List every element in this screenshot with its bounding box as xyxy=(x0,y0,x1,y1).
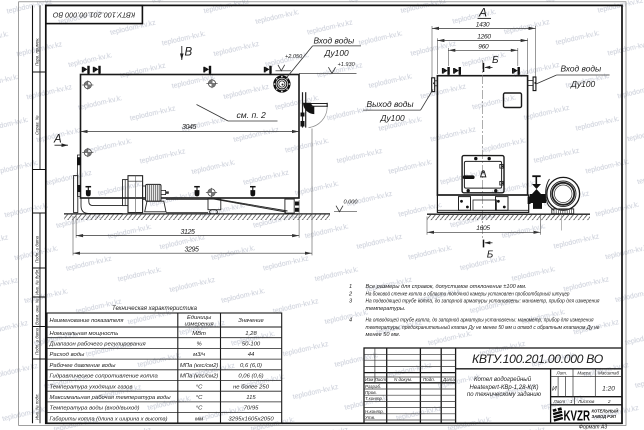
svg-text:Инв. № дубл.: Инв. № дубл. xyxy=(34,269,39,295)
svg-text:3045: 3045 xyxy=(182,124,196,131)
svg-text:температуры.: температуры. xyxy=(366,306,406,312)
svg-text:Значение: Значение xyxy=(238,318,264,324)
svg-text:ЗАВОД РЭП: ЗАВОД РЭП xyxy=(592,414,617,419)
svg-text:Изм Лист: Изм Лист xyxy=(365,377,386,382)
svg-text:КВТУ.100.201.00.000 ВО: КВТУ.100.201.00.000 ВО xyxy=(52,11,135,20)
svg-text:На боковой стенке котла в обла: На боковой стенке котла в области топочн… xyxy=(366,290,570,297)
svg-text:Наименование показателя: Наименование показателя xyxy=(50,318,124,324)
svg-text:Подп.: Подп. xyxy=(423,377,435,382)
svg-text:КОТЕЛЬНЫЙ: КОТЕЛЬНЫЙ xyxy=(592,409,620,414)
svg-text:0,06 (0,6): 0,06 (0,6) xyxy=(238,374,263,380)
svg-text:3125: 3125 xyxy=(181,229,195,236)
svg-text:Техническая характеристика: Техническая характеристика xyxy=(112,306,198,312)
svg-text:1260: 1260 xyxy=(477,34,491,41)
svg-text:44: 44 xyxy=(248,352,255,358)
svg-text:Разраб.: Разраб. xyxy=(365,384,381,389)
svg-text:Габариты котла (длина х ширина: Габариты котла (длина х ширина х высота) xyxy=(50,416,168,422)
svg-text:Лист: Лист xyxy=(553,399,566,404)
svg-text:Температура воды (вход/выход): Температура воды (вход/выход) xyxy=(50,406,140,412)
svg-text:115: 115 xyxy=(246,395,256,401)
svg-text:Единицы: Единицы xyxy=(187,315,212,321)
svg-text:Heatexpert-КВр-1,28-К(К): Heatexpert-КВр-1,28-К(К) xyxy=(470,385,539,391)
svg-text:Н.контр.: Н.контр. xyxy=(365,409,384,414)
svg-text:температуры, предохранительный: температуры, предохранительный клапан Ду… xyxy=(366,324,600,331)
svg-text:Котел водогрейный: Котел водогрейный xyxy=(474,376,532,383)
svg-text:Лит.: Лит. xyxy=(556,371,568,376)
svg-text:На отводящей трубе котла, до з: На отводящей трубе котла, до запорной ар… xyxy=(366,317,594,324)
svg-text:Утв.: Утв. xyxy=(365,415,375,420)
svg-text:1:20: 1:20 xyxy=(602,386,615,393)
svg-text:Вход воды: Вход воды xyxy=(561,64,602,74)
svg-text:В: В xyxy=(185,47,193,59)
svg-text:Б: Б xyxy=(487,250,494,261)
svg-text:50-100: 50-100 xyxy=(242,342,261,348)
svg-text:Т.контр.: Т.контр. xyxy=(365,396,383,401)
svg-text:МПа (кгс/см2): МПа (кгс/см2) xyxy=(180,374,219,380)
svg-text:Ду100: Ду100 xyxy=(324,48,349,58)
svg-text:Максимальная рабочая температу: Максимальная рабочая температура воды xyxy=(50,395,172,401)
svg-text:Ду100: Ду100 xyxy=(570,79,595,89)
svg-text:Ду100: Ду100 xyxy=(380,113,405,123)
svg-text:1605: 1605 xyxy=(476,225,490,232)
svg-text:KVZR: KVZR xyxy=(564,408,591,424)
svg-text:МВт: МВт xyxy=(192,331,206,337)
svg-text:см. п. 2: см. п. 2 xyxy=(237,110,266,120)
svg-text:1: 1 xyxy=(349,284,352,290)
svg-text:Все размеры для справок, допус: Все размеры для справок, допустимое откл… xyxy=(366,284,527,290)
svg-text:Взам. инв. №: Взам. инв. № xyxy=(34,298,39,325)
svg-text:Вход воды: Вход воды xyxy=(314,36,355,46)
svg-text:+2.050: +2.050 xyxy=(285,54,303,60)
svg-text:менее 50 мм.: менее 50 мм. xyxy=(366,332,401,338)
svg-text:1430: 1430 xyxy=(476,21,490,28)
svg-text:На подводящей трубе котла, до: На подводящей трубе котла, до запорной а… xyxy=(366,298,600,305)
svg-text:Инв. № подл.: Инв. № подл. xyxy=(34,393,39,420)
svg-text:Масса: Масса xyxy=(577,371,591,376)
svg-text:Температура уходящих газов: Температура уходящих газов xyxy=(50,384,133,390)
svg-text:И: И xyxy=(552,386,557,393)
svg-text:N докум.: N докум. xyxy=(394,377,412,382)
svg-text:не более 250: не более 250 xyxy=(233,384,270,390)
svg-text:960: 960 xyxy=(478,44,489,51)
svg-text:Диапазон рабочего регулировани: Диапазон рабочего регулирования xyxy=(49,342,147,348)
svg-text:А: А xyxy=(478,6,487,20)
svg-text:МПа (кгс/см2): МПа (кгс/см2) xyxy=(180,363,219,369)
svg-text:Пров.: Пров. xyxy=(365,390,377,395)
svg-text:Дата: Дата xyxy=(442,377,455,382)
svg-text:Подп. и дата: Подп. и дата xyxy=(34,235,39,263)
svg-text:0,6 (6,0): 0,6 (6,0) xyxy=(240,363,262,369)
svg-text:Подп. и дата: Подп. и дата xyxy=(34,327,39,355)
svg-text:Формат А3: Формат А3 xyxy=(579,425,607,430)
svg-text:Листов: Листов xyxy=(577,399,595,404)
svg-text:°С: °С xyxy=(196,406,203,412)
svg-text:Расход воды: Расход воды xyxy=(50,352,86,358)
svg-text:2: 2 xyxy=(607,399,611,404)
svg-text:Выход воды: Выход воды xyxy=(367,99,414,109)
svg-text:измерения: измерения xyxy=(185,322,214,328)
svg-text:мм: мм xyxy=(195,416,203,422)
svg-text:Перв. примен.: Перв. примен. xyxy=(34,37,39,66)
svg-text:Гидравлическое сопротивление к: Гидравлическое сопротивление котла xyxy=(50,374,159,380)
svg-text:Масштаб: Масштаб xyxy=(598,371,619,376)
svg-text:0.000: 0.000 xyxy=(344,200,359,206)
svg-text:4: 4 xyxy=(349,318,352,324)
svg-text:Рабочее давление воды: Рабочее давление воды xyxy=(50,363,117,369)
svg-text:КВТУ.100.201.00.000 ВО: КВТУ.100.201.00.000 ВО xyxy=(472,352,604,366)
svg-text:70/95: 70/95 xyxy=(244,406,259,412)
svg-text:м3/ч: м3/ч xyxy=(193,352,205,358)
svg-text:1,28: 1,28 xyxy=(245,331,257,337)
svg-text:Б: Б xyxy=(492,55,499,66)
svg-text:+1.930: +1.930 xyxy=(338,62,356,68)
svg-text:по техническому заданию: по техническому заданию xyxy=(467,392,542,398)
svg-text:°С: °С xyxy=(196,384,203,390)
svg-text:А: А xyxy=(53,134,62,146)
svg-text:Справ. №: Справ. № xyxy=(34,115,39,135)
svg-text:%: % xyxy=(196,342,201,348)
svg-text:Номинальная мощность: Номинальная мощность xyxy=(50,331,119,337)
svg-text:3295: 3295 xyxy=(185,246,199,253)
svg-text:3295х1605х2050: 3295х1605х2050 xyxy=(228,416,274,422)
svg-text:°С: °С xyxy=(196,395,203,401)
